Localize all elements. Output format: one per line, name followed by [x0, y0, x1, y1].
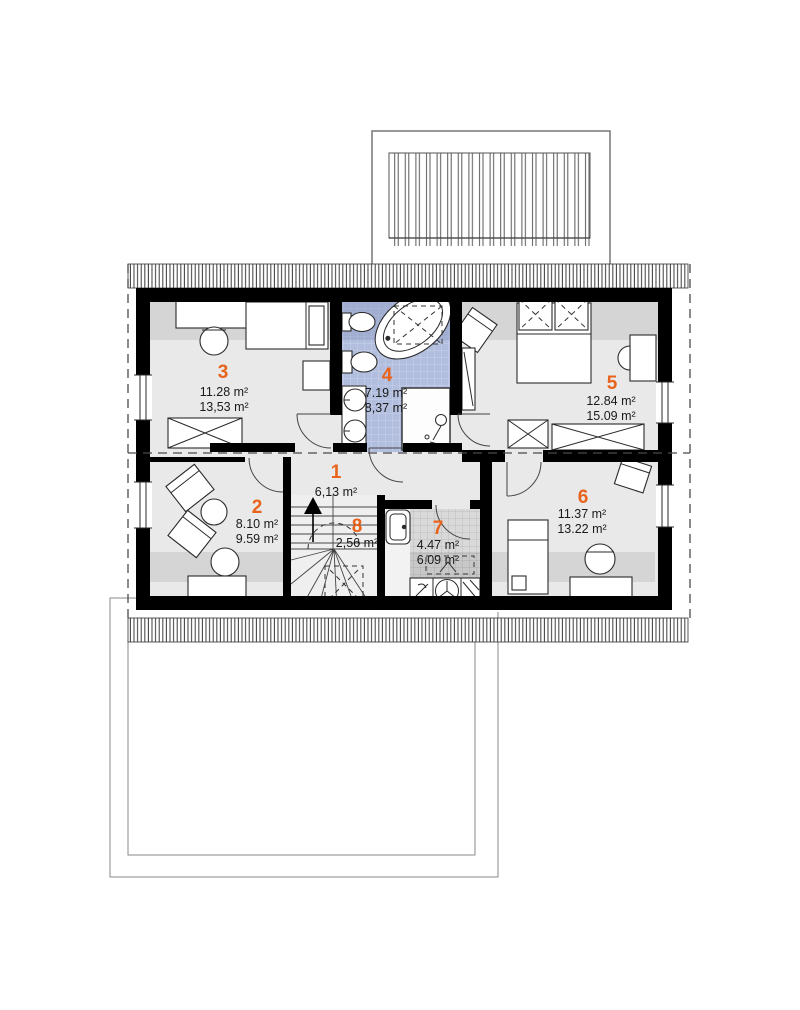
desk [630, 335, 656, 381]
window-room3 [134, 375, 152, 420]
armchair [303, 361, 330, 390]
room4-area: 7.19 m² [365, 386, 407, 400]
pillow [309, 306, 324, 345]
room2-area: 8.10 m² [236, 517, 278, 531]
room3-number: 3 [218, 362, 229, 383]
room5-area: 12.84 m² [586, 394, 635, 408]
room6-number: 6 [578, 487, 589, 508]
room2-area: 9.59 m² [236, 532, 278, 546]
room5-area: 15.09 m² [586, 409, 635, 423]
floor-plan-page: 1 6,13 m² 2 8.10 m² 9.59 m² 3 11.28 m² 1… [0, 0, 800, 1010]
room6-area: 13.22 m² [557, 522, 606, 536]
room3-area: 13,53 m² [199, 400, 248, 414]
eaves-strip-top [128, 264, 688, 288]
window-room6 [656, 485, 674, 527]
balcony [372, 131, 610, 266]
room3-area: 11.28 m² [200, 385, 248, 399]
bed-shelf [512, 576, 526, 590]
window-room2 [134, 482, 152, 528]
room5-number: 5 [607, 373, 618, 394]
desk-chair [200, 327, 228, 355]
toilet [349, 313, 375, 332]
room2-number: 2 [252, 497, 263, 518]
room4-area: 8,37 m² [365, 401, 407, 415]
floor-plan-drawing: 1 6,13 m² 2 8.10 m² 9.59 m² 3 11.28 m² 1… [0, 0, 800, 1010]
shower-area [402, 388, 450, 450]
balcony-railing [389, 153, 590, 238]
desk [176, 301, 252, 328]
desk-chair [211, 548, 239, 576]
round-table [201, 499, 227, 525]
room7-area: 6.09 m² [417, 553, 459, 567]
window-room5 [656, 382, 674, 423]
room1-number: 1 [331, 462, 342, 483]
room7-area: 4.47 m² [417, 538, 459, 552]
room8-area: 2,56 m² [336, 536, 378, 550]
room1-area: 6,13 m² [315, 485, 357, 499]
desk-chair [585, 544, 615, 574]
room4-number: 4 [382, 365, 393, 386]
room8-number: 8 [352, 516, 363, 537]
room6-area: 11.37 m² [558, 507, 606, 521]
bidet [351, 352, 377, 372]
room7-number: 7 [433, 518, 444, 539]
eaves-strip-bottom [128, 618, 688, 642]
